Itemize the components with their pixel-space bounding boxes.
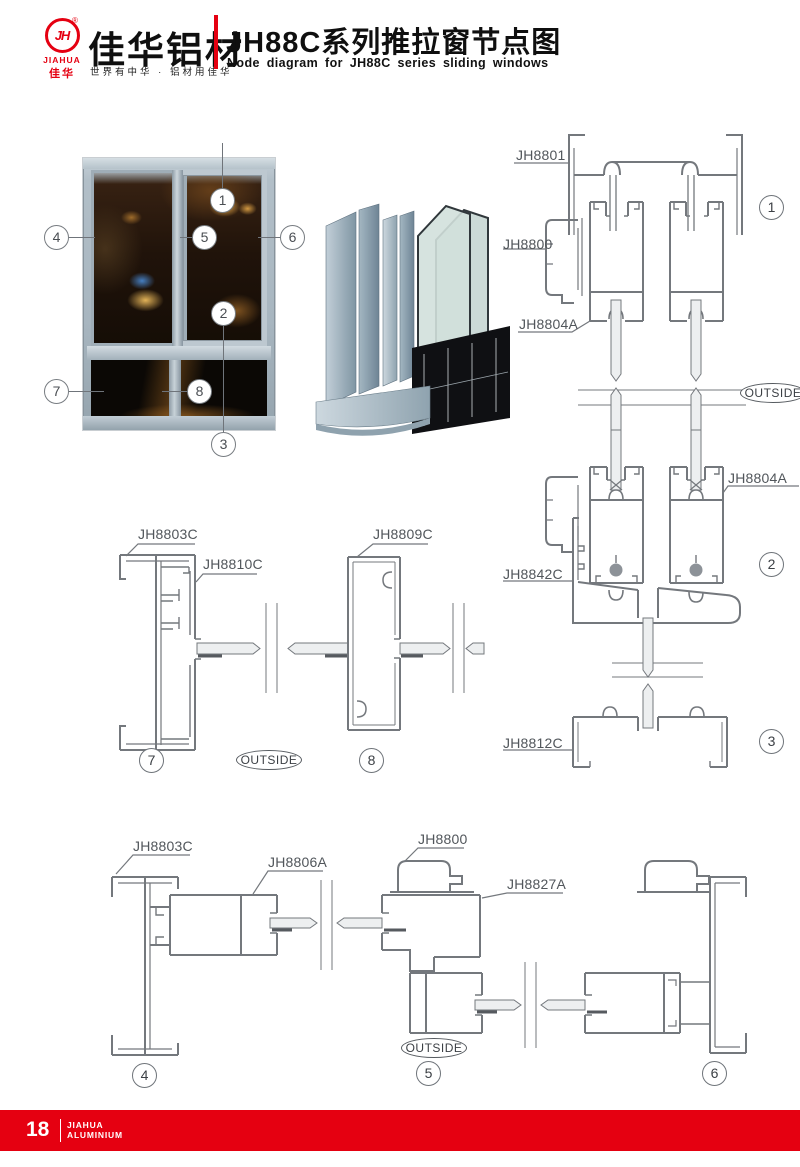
catalog-page: JH JIAHUA 佳华 ® 佳华铝材 世界有中华 · 铝材用佳华 JH88C系… [0,0,800,1167]
footer-band: 18 JIAHUA ALUMINIUM [0,1110,800,1151]
interlock-jh8827a-drawing [382,861,482,1033]
glass-panes [270,918,585,1010]
profile-3d-render [312,196,518,436]
logo-monogram: JH [55,28,70,43]
mullion-stem-glass [643,618,653,728]
photo-callout-2: 2 [211,301,236,326]
section-detail-1 [490,118,800,430]
outside-label-top: OUTSIDE [740,383,800,403]
bottom-frame [83,416,275,430]
callout-line-4 [69,237,95,238]
lower-mullion [169,360,181,416]
label-jh8812c: JH8812C [503,735,563,751]
label-jh8806a: JH8806A [268,854,327,870]
detail-7-marker: 7 [139,748,164,773]
label-jh8801: JH8801 [516,147,565,163]
frame-jh8801-drawing [569,135,742,235]
brand-tagline: 世界有中华 · 铝材用佳华 [90,64,232,78]
section-break-lines [321,880,536,1048]
meeting-stile [172,170,183,346]
window-photo [83,158,275,430]
label-jh8809c: JH8809C [373,526,433,542]
label-jh8827a: JH8827A [507,876,566,892]
page-subtitle: Node diagram for JH88C series sliding wi… [227,56,549,70]
logo-name-en: JIAHUA [36,55,88,65]
leader-lines [116,848,563,898]
footer-divider [60,1119,61,1142]
label-jh8803c-d7: JH8803C [138,526,198,542]
frame-jh8803c-drawing [120,555,201,750]
callout-line-1 [222,143,223,188]
photo-callout-4: 4 [44,225,69,250]
section-break-lines [612,663,703,677]
page-title: JH88C系列推拉窗节点图 [226,19,561,61]
photo-callout-7: 7 [44,379,69,404]
glass-panes [611,300,701,430]
detail-1-marker: 1 [759,195,784,220]
photo-callout-6: 6 [280,225,305,250]
window-top-cap [83,158,275,169]
logo-name-cn: 佳华 [36,65,88,81]
track-jh8842c-drawing [573,518,740,624]
callout-line-5 [180,237,192,238]
sash-and-frame-d6-drawing [585,861,746,1053]
detail-5-marker: 5 [416,1061,441,1086]
label-jh8804a-d1: JH8804A [519,316,578,332]
photo-callout-8: 8 [187,379,212,404]
detail-4-marker: 4 [132,1063,157,1088]
callout-line-8 [162,391,187,392]
photo-callout-3: 3 [211,432,236,457]
label-jh8842c: JH8842C [503,566,563,582]
label-jh8810c: JH8810C [203,556,263,572]
footer-brand-line1: JIAHUA [67,1120,123,1130]
leader-lines [126,544,428,582]
section-break-lines [578,390,746,405]
detail-8-marker: 8 [359,748,384,773]
callout-line-6 [258,237,280,238]
middle-rail [87,346,271,360]
glass-panes [197,643,484,654]
brand-logo: JH JIAHUA 佳华 [36,18,88,81]
label-jh8800-d1: JH8800 [503,236,552,252]
frame-jh8803c-drawing-d4 [112,877,178,1055]
detail-2-marker: 2 [759,552,784,577]
label-jh8804a-d2: JH8804A [728,470,787,486]
clip-jh8800-drawing [546,218,582,303]
label-jh8803c-d4: JH8803C [133,838,193,854]
detail-6-marker: 6 [702,1061,727,1086]
liner-jh8810c-drawing [161,567,190,739]
rollers [610,564,703,577]
glazing-wedges [610,480,702,490]
glass-panes [611,430,701,490]
registered-mark: ® [72,16,78,25]
page-number: 18 [26,1118,49,1142]
callout-line-2-3 [223,326,224,432]
render-extrusions [326,204,414,406]
outside-label-middle: OUTSIDE [236,750,302,770]
footer-brand-line2: ALUMINIUM [67,1130,123,1140]
photo-callout-5: 5 [192,225,217,250]
header-divider [214,15,218,69]
sash-jh8806a-drawing [150,895,277,955]
detail-3-marker: 3 [759,729,784,754]
label-jh8800-d5: JH8800 [418,831,467,847]
sash-bottom-jh8804a-drawing [590,467,723,583]
footer-brand: JIAHUA ALUMINIUM [67,1120,123,1140]
callout-line-7 [69,391,104,392]
outside-label-bottom: OUTSIDE [401,1038,467,1058]
photo-callout-1: 1 [210,188,235,213]
stile-jh8809c-drawing [348,557,400,730]
